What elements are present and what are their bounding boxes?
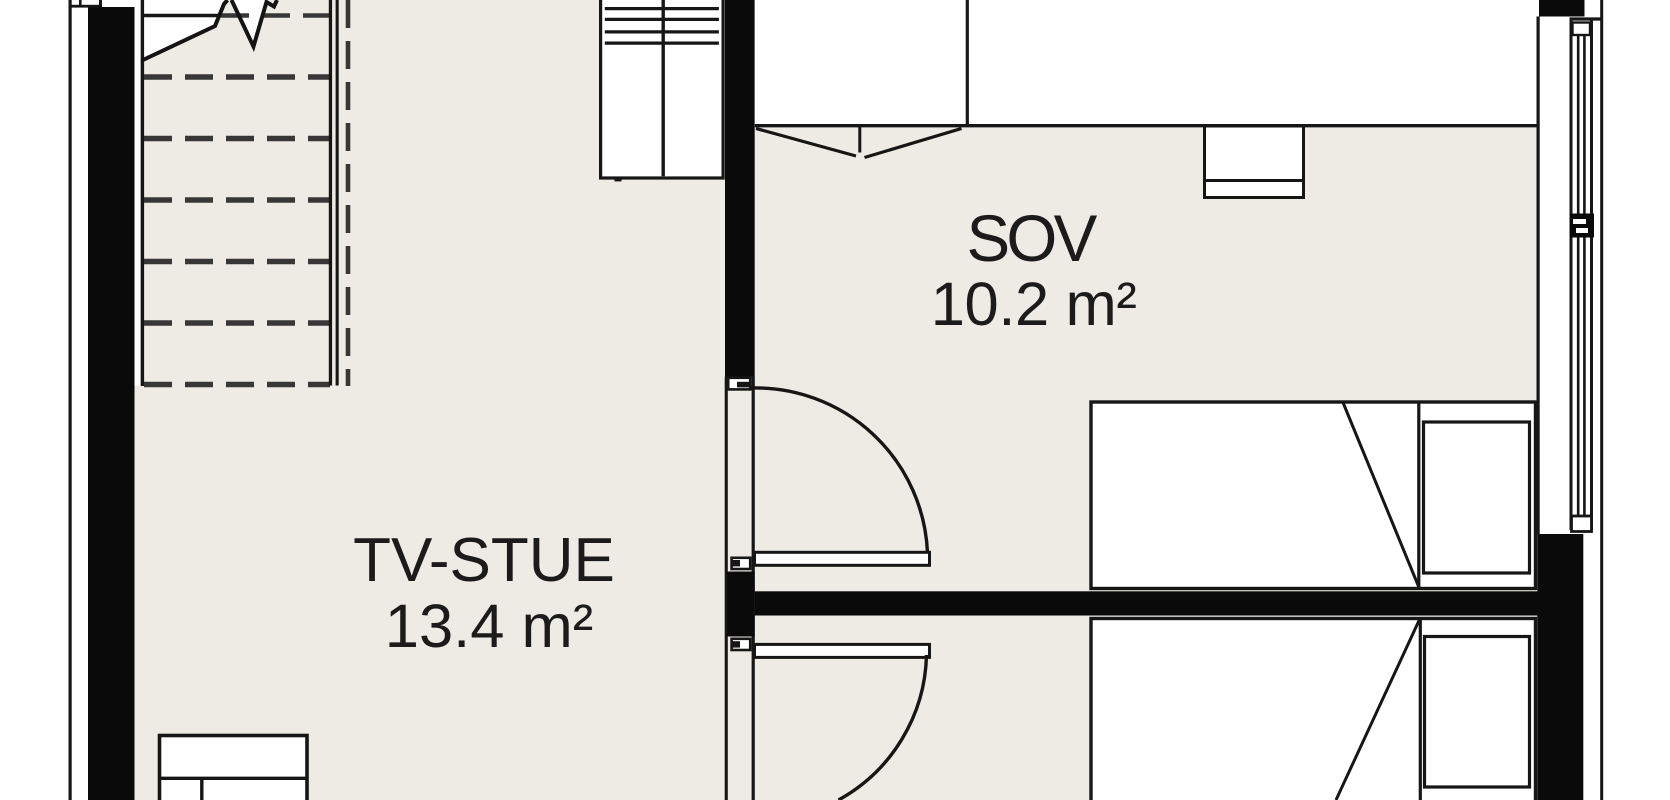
svg-text:TV-STUE: TV-STUE	[353, 526, 615, 595]
svg-text:10.2 m²: 10.2 m²	[931, 270, 1137, 339]
svg-text:SOV: SOV	[967, 202, 1098, 275]
svg-text:13.4 m²: 13.4 m²	[385, 592, 594, 661]
